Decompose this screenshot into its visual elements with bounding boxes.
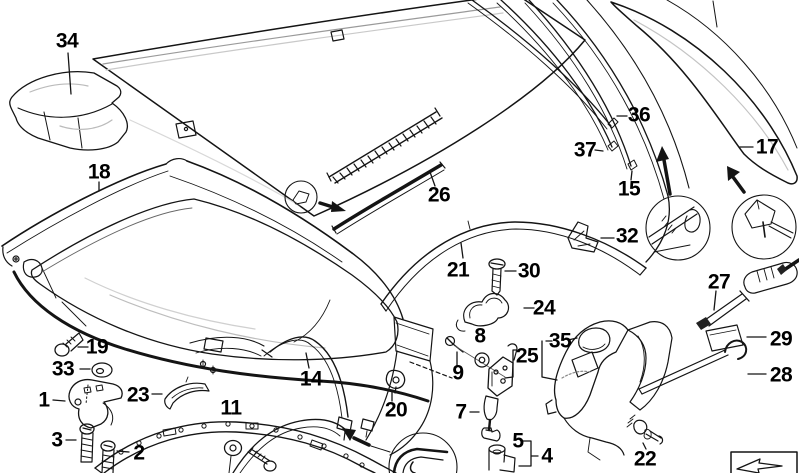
- part-label-17[interactable]: 17: [756, 137, 778, 158]
- part-label-5[interactable]: 5: [512, 431, 523, 452]
- part-label-32[interactable]: 32: [616, 226, 638, 247]
- part-label-35[interactable]: 35: [549, 331, 571, 352]
- part-label-30[interactable]: 30: [518, 261, 540, 282]
- part-label-26[interactable]: 26: [428, 185, 450, 206]
- part-label-24[interactable]: 24: [533, 298, 555, 319]
- part-label-33[interactable]: 33: [52, 359, 74, 380]
- part-label-2[interactable]: 2: [133, 443, 144, 464]
- part-label-18[interactable]: 18: [88, 162, 110, 183]
- parts-diagram: 1234578911141517181920212223242526272829…: [0, 0, 799, 473]
- part-label-3[interactable]: 3: [51, 430, 62, 451]
- part-label-22[interactable]: 22: [634, 449, 656, 470]
- part-label-4[interactable]: 4: [541, 446, 552, 467]
- part-label-8[interactable]: 8: [474, 326, 485, 347]
- part-label-20[interactable]: 20: [385, 400, 407, 421]
- part-label-25[interactable]: 25: [516, 346, 538, 367]
- part-label-21[interactable]: 21: [447, 260, 469, 281]
- part-label-7[interactable]: 7: [455, 402, 466, 423]
- part-label-23[interactable]: 23: [127, 385, 149, 406]
- part-label-37[interactable]: 37: [574, 140, 596, 161]
- part-label-14[interactable]: 14: [300, 369, 322, 390]
- part-label-34[interactable]: 34: [56, 31, 78, 52]
- part-label-27[interactable]: 27: [708, 272, 730, 293]
- part-label-1[interactable]: 1: [38, 390, 49, 411]
- part-label-36[interactable]: 36: [628, 105, 650, 126]
- part-label-19[interactable]: 19: [86, 337, 108, 358]
- part-labels-layer: 1234578911141517181920212223242526272829…: [0, 0, 799, 473]
- part-label-9[interactable]: 9: [452, 363, 463, 384]
- part-label-15[interactable]: 15: [618, 179, 640, 200]
- part-label-29[interactable]: 29: [770, 329, 792, 350]
- part-label-28[interactable]: 28: [770, 365, 792, 386]
- part-label-11[interactable]: 11: [220, 398, 241, 419]
